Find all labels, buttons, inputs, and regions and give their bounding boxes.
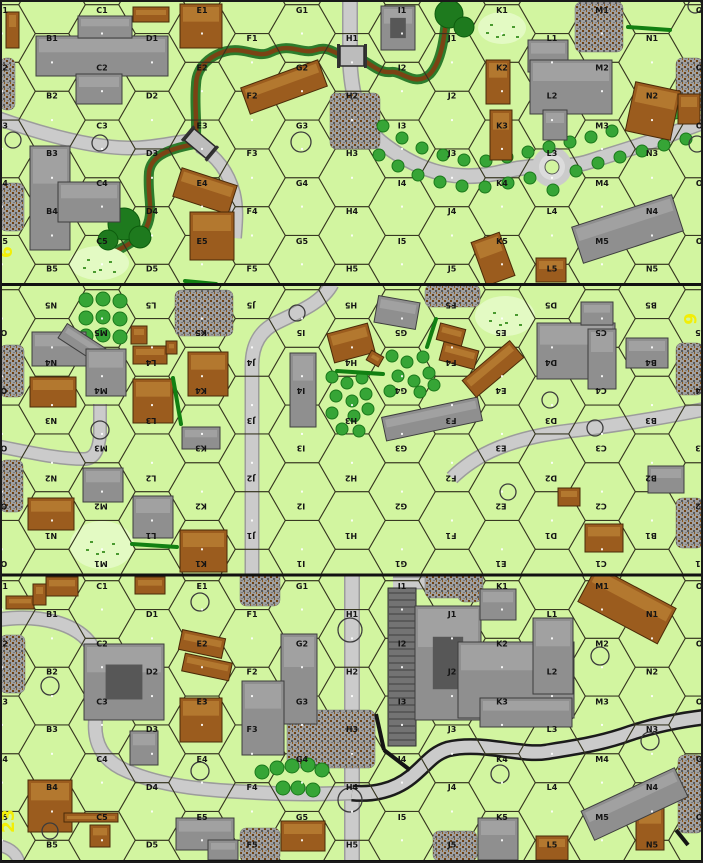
stone-building (242, 681, 284, 755)
orchard-tree (658, 139, 670, 151)
hex-label: G1 (395, 559, 408, 568)
orchard-tree (396, 132, 408, 144)
hex-label: L3 (547, 725, 558, 734)
orchard-tree (412, 169, 424, 181)
hex-label: M3 (94, 444, 108, 453)
hex-label: H5 (344, 300, 357, 309)
hex-label: E5 (196, 813, 207, 822)
hex-label: E2 (196, 64, 207, 73)
hex-label: F1 (246, 610, 257, 619)
wood-building (678, 94, 700, 124)
stone-building (208, 840, 238, 860)
rubble (0, 183, 24, 231)
hex-label: D1 (146, 34, 159, 43)
hex-label: D2 (146, 92, 158, 101)
hex-label: C3 (595, 444, 606, 453)
brush-tuft (493, 312, 496, 314)
orchard-tree (360, 388, 372, 400)
hex-label: L2 (547, 92, 558, 101)
hex-label: E4 (196, 755, 207, 764)
hex-label: M3 (595, 121, 609, 130)
hex-label: K5 (496, 237, 508, 246)
orchard-tree (417, 351, 429, 363)
orchard-tree (392, 160, 404, 172)
hex-label: D2 (545, 474, 557, 483)
hex-label: G2 (296, 640, 308, 649)
hex-label: K4 (496, 755, 508, 764)
stone-building (84, 644, 164, 720)
orchard-tree (306, 783, 320, 797)
orchard-tree (614, 151, 626, 163)
hex-label: G4 (395, 386, 408, 395)
brush-tuft (519, 324, 522, 326)
hex-label: C3 (96, 121, 107, 130)
hex-label: L5 (145, 300, 156, 309)
orchard-tree (401, 356, 413, 368)
hex-label: J3 (447, 149, 457, 158)
orchard-tree (113, 312, 127, 326)
hex-label: M3 (595, 697, 609, 706)
orchard-tree (522, 146, 534, 158)
hex-label: N5 (646, 265, 659, 274)
hex-label: B3 (645, 416, 657, 425)
brush-tuft (516, 36, 519, 38)
hex-label: L3 (146, 416, 157, 425)
hex-label: I4 (398, 755, 407, 764)
hex-label: D1 (146, 610, 159, 619)
hex-label: J4 (246, 358, 256, 367)
hex-label: M2 (595, 64, 609, 73)
orchard-tree (423, 367, 435, 379)
hex-label: H4 (346, 207, 359, 216)
orchard-tree (255, 765, 269, 779)
hex-label: F3 (246, 725, 257, 734)
hex-label: H3 (346, 149, 358, 158)
orchard-tree (96, 310, 110, 324)
hex-label: G3 (296, 121, 308, 130)
hex-label: M1 (595, 582, 609, 591)
hex-label: N1 (646, 34, 659, 43)
hex-label: M1 (595, 6, 609, 15)
hex-label: M4 (595, 179, 609, 188)
hex-label: C3 (96, 697, 107, 706)
hex-label: N1 (646, 610, 659, 619)
hex-label: I1 (296, 559, 305, 568)
brush-tuft (109, 261, 112, 263)
orchard-tree (79, 293, 93, 307)
orchard-tree (113, 330, 127, 344)
hex-label: H5 (346, 841, 359, 850)
hex-label: L5 (547, 841, 558, 850)
hex-label: G2 (296, 64, 308, 73)
orchard-tree (428, 379, 440, 391)
hex-label: F1 (246, 34, 257, 43)
hex-label: E1 (495, 559, 506, 568)
hex-label: I3 (297, 444, 306, 453)
hex-label: I5 (398, 237, 407, 246)
stone-building (533, 618, 573, 694)
brush-tuft (496, 36, 499, 38)
stone-building (581, 302, 613, 325)
vasl-map-window: A1A2A3A4A5B1B2B3B4B5C1C2C3C4C5D1D2D3D4D5… (0, 0, 703, 863)
wood-building (133, 7, 169, 22)
hex-label: F5 (246, 841, 257, 850)
hex-map-board[interactable]: A1A2A3A4A5B1B2B3B4B5C1C2C3C4C5D1D2D3D4D5… (0, 0, 703, 863)
hex-label: K4 (496, 179, 508, 188)
hex-label: G4 (296, 755, 309, 764)
hex-label: F2 (246, 92, 257, 101)
wood-building (46, 577, 78, 596)
hex-label: J1 (246, 531, 256, 540)
hex-label: H2 (345, 474, 357, 483)
orchard-tree (384, 385, 396, 397)
wood-building (135, 577, 165, 594)
hex-label: J4 (447, 207, 457, 216)
hex-label: B1 (46, 610, 58, 619)
hex-label: I5 (296, 328, 305, 337)
orchard-tree (416, 142, 428, 154)
hex-label: E4 (495, 386, 506, 395)
wood-building (131, 326, 147, 344)
orchard-tree (592, 157, 604, 169)
brush-tuft (490, 24, 493, 26)
hex-label: E3 (196, 697, 207, 706)
hex-label: M4 (94, 386, 108, 395)
hex-label: F5 (445, 300, 456, 309)
hex-label: K3 (496, 697, 508, 706)
hex-label: H2 (346, 668, 358, 677)
hex-label: H4 (344, 358, 357, 367)
hex-label: B2 (46, 668, 58, 677)
orchard-tree (341, 377, 353, 389)
hex-label: I3 (398, 697, 407, 706)
hex-label: C4 (595, 386, 607, 395)
hex-label: C5 (96, 237, 108, 246)
wood-building (490, 110, 512, 160)
wood-building (90, 825, 110, 847)
hex-label: L4 (547, 783, 558, 792)
hex-label: F5 (246, 265, 257, 274)
brush-tuft (512, 26, 515, 28)
brush-tuft (90, 541, 93, 543)
hex-label: C4 (96, 755, 108, 764)
hex-label: L4 (547, 207, 558, 216)
wood-building (64, 813, 118, 822)
orchard-tree (414, 386, 426, 398)
hex-label: E5 (495, 328, 506, 337)
hex-label: N5 (646, 841, 659, 850)
hex-label: C4 (96, 179, 108, 188)
hex-label: M2 (94, 501, 108, 510)
wood-building (585, 524, 623, 552)
hex-label: M4 (595, 755, 609, 764)
stone-building (58, 182, 120, 222)
hex-label: D4 (544, 358, 557, 367)
hex-label: K1 (496, 6, 508, 15)
stone-building (83, 468, 123, 502)
hex-label: F2 (246, 668, 257, 677)
hex-label: E5 (196, 237, 207, 246)
brush-tuft (87, 259, 90, 261)
hex-label: B5 (46, 265, 58, 274)
hex-label: J5 (447, 265, 457, 274)
plaza-center (545, 160, 559, 174)
orchard-tree (96, 292, 110, 306)
hex-label: J5 (246, 300, 256, 309)
hex-label: K3 (496, 121, 508, 130)
orchard-tree (386, 350, 398, 362)
board-number-marker: 6 (679, 313, 699, 325)
hex-label: L2 (547, 668, 558, 677)
hex-label: C5 (96, 813, 108, 822)
hex-label: F3 (246, 149, 257, 158)
board-number-marker: 23 (0, 809, 19, 833)
hex-label: B5 (645, 300, 657, 309)
hex-label: I2 (398, 64, 407, 73)
orchard-tree (547, 184, 559, 196)
wood-building (6, 596, 34, 609)
orchard-tree (408, 375, 420, 387)
wood-building (6, 12, 19, 48)
brush-tuft (83, 267, 86, 269)
hex-label: F4 (246, 783, 257, 792)
hex-label: I1 (398, 6, 407, 15)
hex-label: L1 (145, 531, 156, 540)
hex-label: K5 (195, 328, 207, 337)
hex-label: H1 (344, 531, 357, 540)
hex-label: D5 (146, 265, 159, 274)
hex-label: E4 (196, 179, 207, 188)
hex-label: N2 (45, 474, 57, 483)
hex-label: D3 (146, 149, 158, 158)
orchard-tree (456, 180, 468, 192)
hex-label: I2 (297, 501, 306, 510)
orchard-tree (434, 176, 446, 188)
orchard-tree (524, 172, 536, 184)
wood-building (30, 377, 76, 407)
hex-label: N1 (44, 531, 57, 540)
hex-label: D5 (544, 300, 557, 309)
orchard-tree (270, 761, 284, 775)
hex-label: J1 (447, 34, 457, 43)
hex-label: G2 (395, 501, 407, 510)
hex-label: M1 (94, 559, 108, 568)
stone-building (480, 698, 572, 727)
orchard-tree (458, 154, 470, 166)
woods (454, 17, 474, 37)
hex-label: K1 (496, 582, 508, 591)
hex-label: E3 (196, 121, 207, 130)
hex-label: E2 (196, 640, 207, 649)
orchard-tree (326, 407, 338, 419)
hex-label: I4 (398, 179, 407, 188)
stone-building (76, 74, 122, 104)
orchard-tree (330, 390, 342, 402)
hex-label: K2 (496, 64, 508, 73)
hex-label: K1 (195, 559, 207, 568)
hex-label: K4 (195, 386, 207, 395)
hex-label: C1 (96, 582, 108, 591)
hex-label: E1 (196, 582, 207, 591)
hex-label: C5 (595, 328, 607, 337)
hex-label: B3 (46, 149, 58, 158)
hex-label: B2 (645, 474, 657, 483)
hex-label: B4 (645, 358, 657, 367)
hex-label: B1 (46, 34, 58, 43)
hex-label: L5 (547, 265, 558, 274)
orchard-tree (353, 425, 365, 437)
orchard-tree (373, 149, 385, 161)
hex-label: D2 (146, 668, 158, 677)
hex-label: I2 (398, 640, 407, 649)
bridge (337, 44, 367, 68)
orchard-tree (362, 403, 374, 415)
wood-building (281, 821, 325, 851)
hex-label: D4 (146, 783, 159, 792)
brush-tuft (505, 322, 508, 324)
hex-label: B2 (46, 92, 58, 101)
hex-label: L1 (547, 610, 558, 619)
hex-label: H3 (345, 416, 357, 425)
orchard-tree (79, 311, 93, 325)
brush-tuft (86, 549, 89, 551)
hex-label: F4 (445, 358, 456, 367)
hex-label: M5 (94, 328, 108, 337)
hex-label: I3 (398, 121, 407, 130)
hex-label: J2 (447, 668, 457, 677)
brush (478, 12, 526, 44)
hex-label: F1 (445, 531, 456, 540)
brush-tuft (112, 543, 115, 545)
hex-label: L1 (547, 34, 558, 43)
hex-label: H5 (346, 265, 359, 274)
brush-tuft (499, 324, 502, 326)
hex-label: H3 (346, 725, 358, 734)
hex-label: C1 (96, 6, 108, 15)
hex-label: J2 (447, 92, 457, 101)
hex-label: J3 (247, 416, 257, 425)
hex-label: J2 (247, 474, 257, 483)
hex-label: B1 (645, 531, 657, 540)
hex-label: E3 (495, 444, 506, 453)
hex-label: E2 (495, 501, 506, 510)
rubble (330, 93, 380, 149)
hex-label: I1 (398, 582, 407, 591)
orchard-tree (479, 181, 491, 193)
brush-tuft (99, 269, 102, 271)
hex-label: D4 (146, 207, 159, 216)
orchard-tree (276, 781, 290, 795)
hex-label: J5 (447, 841, 457, 850)
hex-label: K5 (496, 813, 508, 822)
brush (69, 246, 129, 280)
hex-label: B3 (46, 725, 58, 734)
hex-label: C2 (595, 501, 606, 510)
hex-label: D3 (146, 725, 158, 734)
hex-label: C2 (96, 640, 107, 649)
hex-label: N5 (44, 300, 57, 309)
wood-building (558, 488, 580, 506)
orchard-tree (315, 763, 329, 777)
hex-label: N2 (646, 668, 658, 677)
hex-label: M2 (595, 640, 609, 649)
stone-building (543, 110, 567, 140)
stone-building (78, 16, 132, 38)
orchard-tree (113, 294, 127, 308)
hex-label: L2 (146, 474, 157, 483)
orchard-tree (570, 165, 582, 177)
hex-label: F3 (445, 416, 456, 425)
brush-tuft (113, 271, 116, 273)
hex-label: I5 (398, 813, 407, 822)
hex-label: D5 (146, 841, 159, 850)
hex-label: J3 (447, 725, 457, 734)
hex-label: G1 (296, 6, 309, 15)
hex-label: K3 (195, 444, 207, 453)
brush-tuft (93, 271, 96, 273)
hex-label: L4 (145, 358, 156, 367)
hex-label: G3 (296, 697, 308, 706)
hex-label: M5 (595, 813, 609, 822)
hex-label: K2 (195, 501, 207, 510)
hex-label: F4 (246, 207, 257, 216)
brush-tuft (102, 551, 105, 553)
woods (129, 226, 151, 248)
hex-label: N3 (646, 149, 658, 158)
wood-building (28, 498, 74, 530)
hex-label: G5 (296, 813, 309, 822)
hex-label: H2 (346, 92, 358, 101)
stone-building (130, 731, 158, 765)
hex-label: M5 (595, 237, 609, 246)
hex-label: D3 (545, 416, 557, 425)
hex-label: H4 (346, 783, 359, 792)
hex-label: K2 (496, 640, 508, 649)
hex-label: H1 (346, 34, 359, 43)
orchard-tree (585, 131, 597, 143)
hex-label: J4 (447, 783, 457, 792)
hex-label: N3 (646, 725, 658, 734)
brush-tuft (96, 553, 99, 555)
brush-tuft (116, 553, 119, 555)
hex-label: B4 (46, 783, 58, 792)
hex-label: J1 (447, 610, 457, 619)
hex-label: C1 (595, 559, 607, 568)
hex-label: G4 (296, 179, 309, 188)
hex-label: N4 (646, 783, 659, 792)
hex-label: N4 (646, 207, 659, 216)
hex-label: H1 (346, 610, 359, 619)
hex-label: D1 (544, 531, 557, 540)
brush-tuft (515, 314, 518, 316)
hex-label: I4 (296, 386, 305, 395)
wood-building (33, 584, 46, 605)
wood-building (188, 352, 228, 396)
hex-label: B4 (46, 207, 58, 216)
hex-label: C2 (96, 64, 107, 73)
wood-building (166, 341, 177, 354)
hex-label: B5 (46, 841, 58, 850)
hex-label: F2 (445, 474, 456, 483)
stone-building (478, 818, 518, 860)
board-number-marker: 6 (0, 246, 17, 258)
hex-label: N2 (646, 92, 658, 101)
brush-tuft (489, 320, 492, 322)
hex-label: L3 (547, 149, 558, 158)
orchard-tree (377, 120, 389, 132)
hex-label: G5 (395, 328, 408, 337)
hex-label: G5 (296, 237, 309, 246)
